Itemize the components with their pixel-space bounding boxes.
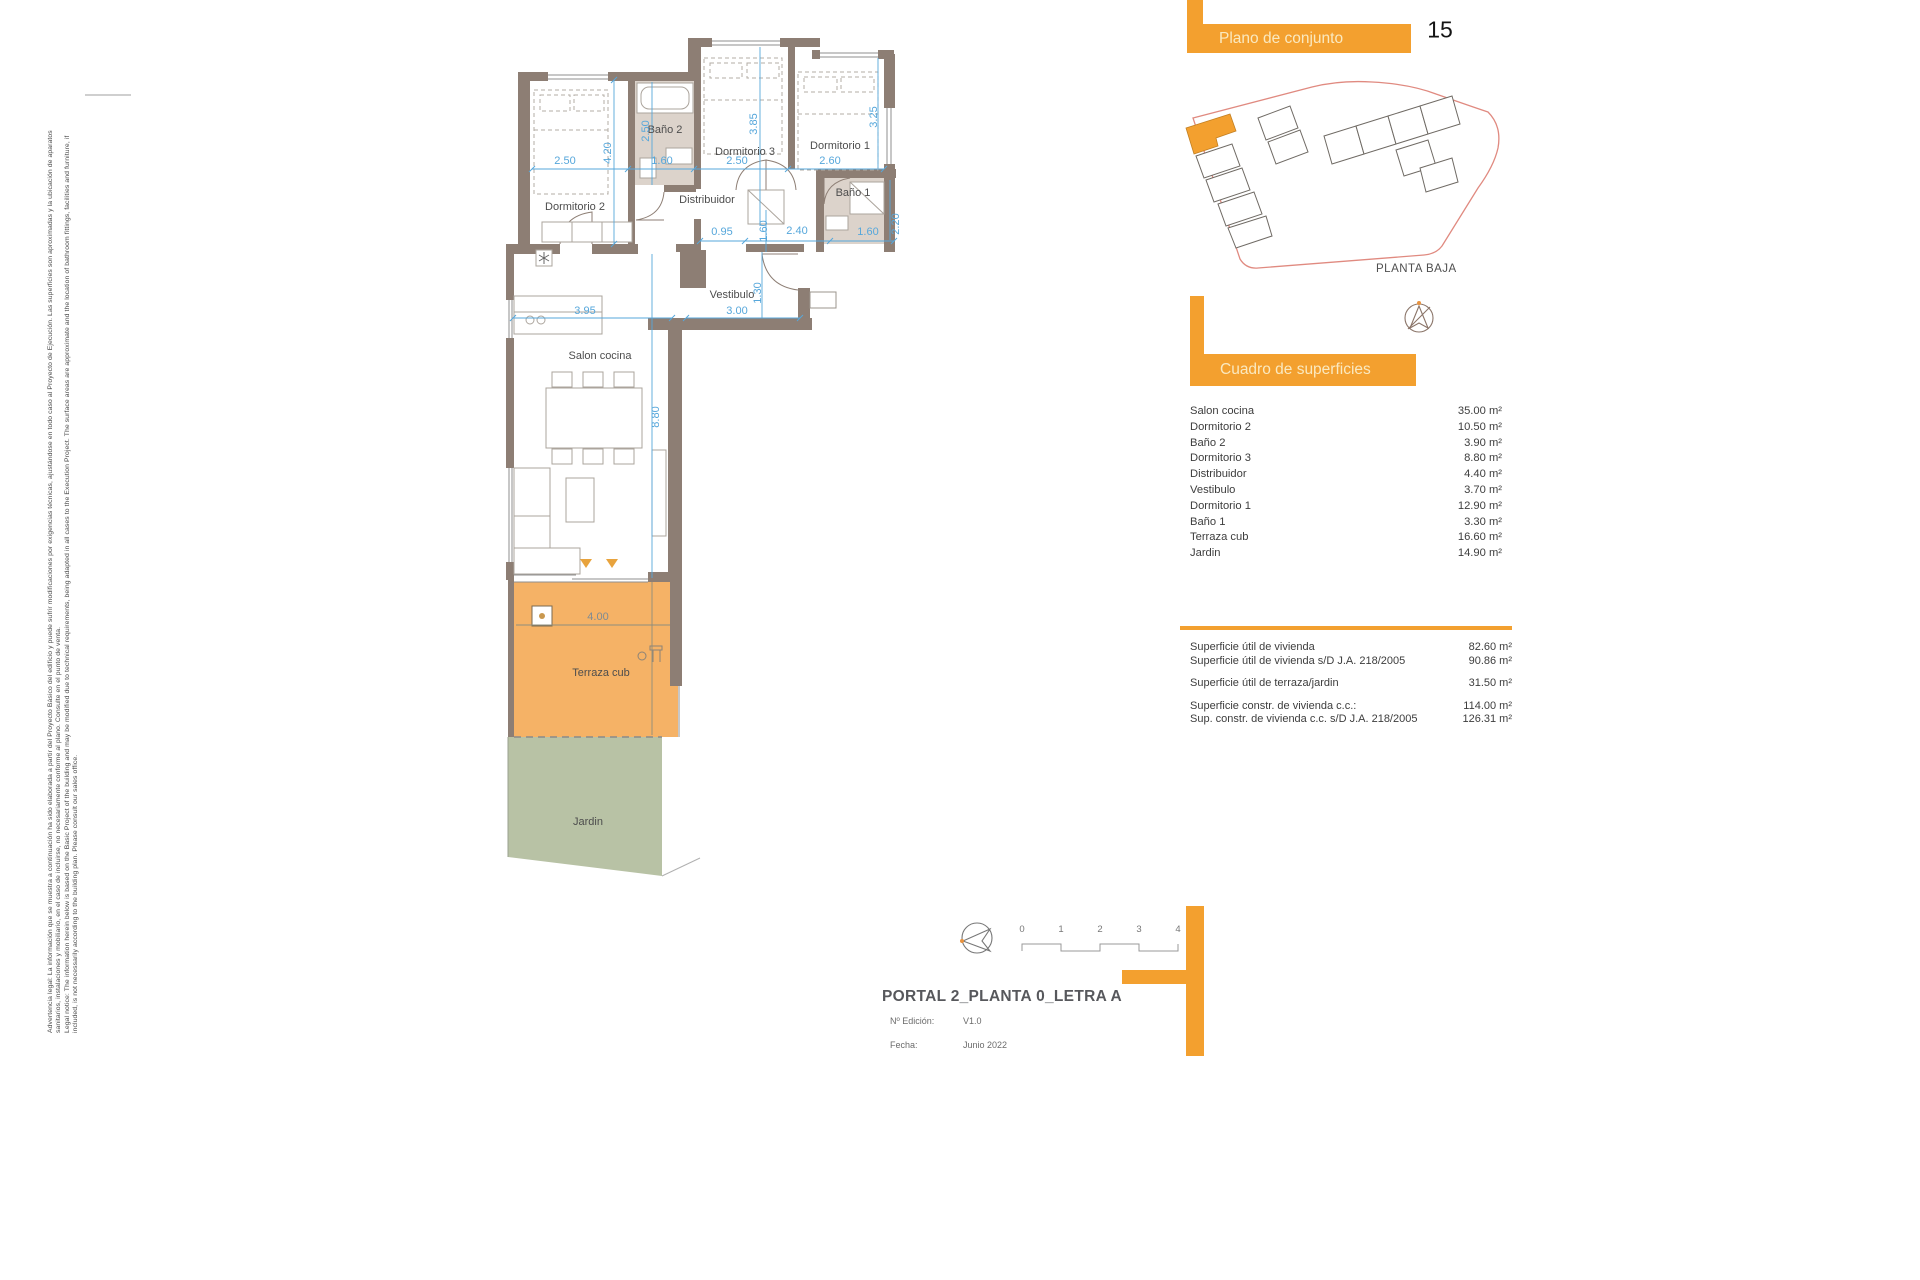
table-row: Dormitorio 210.50 m² xyxy=(1190,420,1502,436)
surfaces-title: Cuadro de superficies xyxy=(1220,361,1371,379)
room-label-dormitorio1: Dormitorio 1 xyxy=(810,140,870,152)
bottom-accent-bar-v xyxy=(1186,906,1204,1056)
scale-tick: 4 xyxy=(1175,924,1180,935)
summary-row: Superficie útil de terraza/jardin31.50 m… xyxy=(1190,677,1512,691)
summary-row: Superficie útil de vivienda82.60 m² xyxy=(1190,641,1512,655)
table-row: Vestibulo3.70 m² xyxy=(1190,483,1502,499)
legal-line: sanitarios, instalaciones y mobiliario, … xyxy=(55,9,63,1033)
dim-distribuidor-3: 2.40 xyxy=(786,225,807,237)
scale-tick: 3 xyxy=(1136,924,1141,935)
dim-distribuidor-1: 0.95 xyxy=(711,226,732,238)
room-label-bano1: Baño 1 xyxy=(836,187,871,199)
floor-caption: PLANTA BAJA xyxy=(1376,263,1457,275)
dim-bano2-height: 2.50 xyxy=(640,120,652,141)
table-row: Dormitorio 38.80 m² xyxy=(1190,451,1502,467)
dim-salon-height: 8.80 xyxy=(650,406,662,427)
table-row: Baño 13.30 m² xyxy=(1190,515,1502,531)
site-plan-title: Plano de conjunto xyxy=(1219,30,1343,48)
sheet-title: PORTAL 2_PLANTA 0_LETRA A xyxy=(882,988,1122,1006)
entrance-step xyxy=(810,292,836,308)
dim-bano1-width: 1.60 xyxy=(857,226,878,238)
legal-disclaimer: Advertencia legal: La información que se… xyxy=(47,9,81,1033)
dim-terraza-width: 4.00 xyxy=(587,611,608,623)
summary-row: Superficie constr. de vivienda c.c.:114.… xyxy=(1190,700,1512,714)
fold-mark xyxy=(85,94,131,96)
entry-arrow-icon xyxy=(580,559,592,568)
top-accent-bar xyxy=(1187,0,1203,53)
scale-tick: 0 xyxy=(1019,924,1024,935)
dim-vestibulo-height: 1.30 xyxy=(752,282,764,303)
room-label-distribuidor: Distribuidor xyxy=(679,194,735,206)
table-row: Distribuidor4.40 m² xyxy=(1190,467,1502,483)
site-plan xyxy=(1186,82,1499,332)
plan-sheet: Plano de conjunto 15 Cuadro de superfici… xyxy=(0,0,1920,1280)
date-label: Fecha: xyxy=(890,1040,918,1050)
jardin-floor xyxy=(508,737,662,876)
room-label-salon: Salon cocina xyxy=(569,350,632,362)
site-plan-banner: Plano de conjunto xyxy=(1203,24,1411,53)
scale-tick: 2 xyxy=(1097,924,1102,935)
table-row: Salon cocina35.00 m² xyxy=(1190,404,1502,420)
room-label-vestibulo: Vestibulo xyxy=(710,289,755,301)
edition-value: V1.0 xyxy=(963,1016,982,1026)
summary-row: Superficie útil de vivienda s/D J.A. 218… xyxy=(1190,655,1512,669)
table-row: Terraza cub16.60 m² xyxy=(1190,530,1502,546)
table-row: Jardin14.90 m² xyxy=(1190,546,1502,562)
legal-line: Advertencia legal: La información que se… xyxy=(47,9,55,1033)
scale-bar xyxy=(1022,944,1178,951)
north-arrow-icon xyxy=(960,923,992,953)
room-label-terraza: Terraza cub xyxy=(572,667,629,679)
dim-dorm1-width: 2.60 xyxy=(819,155,840,167)
dim-dorm1-height: 3.25 xyxy=(868,106,880,127)
dim-dorm2-width: 2.50 xyxy=(554,155,575,167)
surfaces-banner: Cuadro de superficies xyxy=(1204,354,1416,386)
dim-bano1-height: 2.20 xyxy=(890,213,902,234)
legal-line: included, is not necessarily according t… xyxy=(72,9,80,1033)
legal-line: Legal notice: The information herein bel… xyxy=(64,9,72,1033)
room-label-dormitorio2: Dormitorio 2 xyxy=(545,201,605,213)
dim-dorm3-height: 3.85 xyxy=(748,113,760,134)
date-value: Junio 2022 xyxy=(963,1040,1007,1050)
dim-salon-width: 3.95 xyxy=(574,305,595,317)
room-label-bano2: Baño 2 xyxy=(648,124,683,136)
dim-bano2-width: 1.60 xyxy=(651,155,672,167)
drawing-layer xyxy=(0,0,1920,1280)
edition-label: Nº Edición: xyxy=(890,1016,934,1026)
table-row: Baño 23.90 m² xyxy=(1190,436,1502,452)
scale-tick: 1 xyxy=(1058,924,1063,935)
surfaces-summary: Superficie útil de vivienda82.60 m² Supe… xyxy=(1190,641,1512,727)
surfaces-table: Salon cocina35.00 m² Dormitorio 210.50 m… xyxy=(1190,404,1502,562)
dim-dorm2-height: 4.20 xyxy=(602,142,614,163)
dim-vestibulo-width: 3.00 xyxy=(726,305,747,317)
entry-arrow-icon xyxy=(606,559,618,568)
dim-distribuidor-2: 1.60 xyxy=(758,220,770,241)
room-label-jardin: Jardin xyxy=(573,816,603,828)
summary-divider xyxy=(1180,626,1512,630)
summary-row: Sup. constr. de vivienda c.c. s/D J.A. 2… xyxy=(1190,713,1512,727)
table-row: Dormitorio 112.90 m² xyxy=(1190,499,1502,515)
compass-icon xyxy=(1405,301,1433,332)
page-number: 15 xyxy=(1427,17,1453,44)
surfaces-accent-bar xyxy=(1190,296,1204,386)
dim-dorm3-width: 2.50 xyxy=(726,155,747,167)
